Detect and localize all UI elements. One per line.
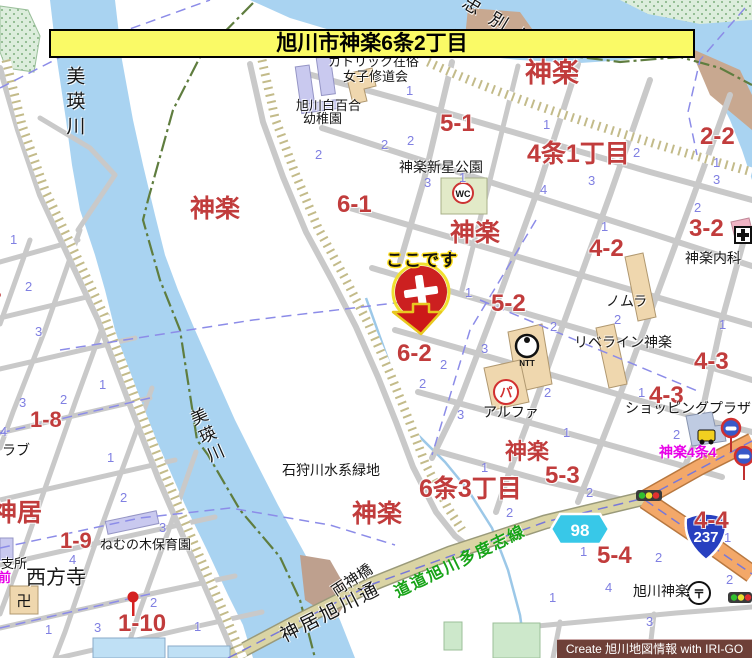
svg-text:WC: WC bbox=[456, 189, 471, 199]
route-shield-98: 98 bbox=[551, 514, 609, 544]
no-entry-sign-icon bbox=[735, 447, 752, 480]
post-office-icon: 〒 bbox=[688, 582, 710, 604]
parking-icon: パ bbox=[494, 380, 518, 404]
svg-text:NTT: NTT bbox=[519, 359, 535, 368]
svg-text:パ: パ bbox=[499, 385, 512, 400]
here-label: ここです bbox=[386, 246, 458, 271]
stream bbox=[366, 298, 526, 658]
svg-text:〒: 〒 bbox=[693, 587, 705, 601]
page-title: 旭川市神楽6条2丁目 bbox=[49, 29, 695, 58]
map-graphics: WC NTT パ 〒 卍 bbox=[0, 0, 752, 658]
temple-manji-icon: 卍 bbox=[16, 593, 31, 610]
svg-text:98: 98 bbox=[571, 521, 590, 540]
hospital-icon bbox=[731, 218, 752, 243]
map-canvas[interactable]: WC NTT パ 〒 卍 bbox=[0, 0, 752, 658]
watermark: Create 旭川地図情報 with IRI-GO bbox=[557, 639, 752, 658]
wc-icon: WC bbox=[453, 183, 473, 203]
traffic-light-icon bbox=[728, 592, 752, 603]
traffic-light-icon bbox=[636, 490, 662, 501]
ntt-icon: NTT bbox=[516, 335, 538, 368]
svg-text:237: 237 bbox=[693, 529, 718, 546]
